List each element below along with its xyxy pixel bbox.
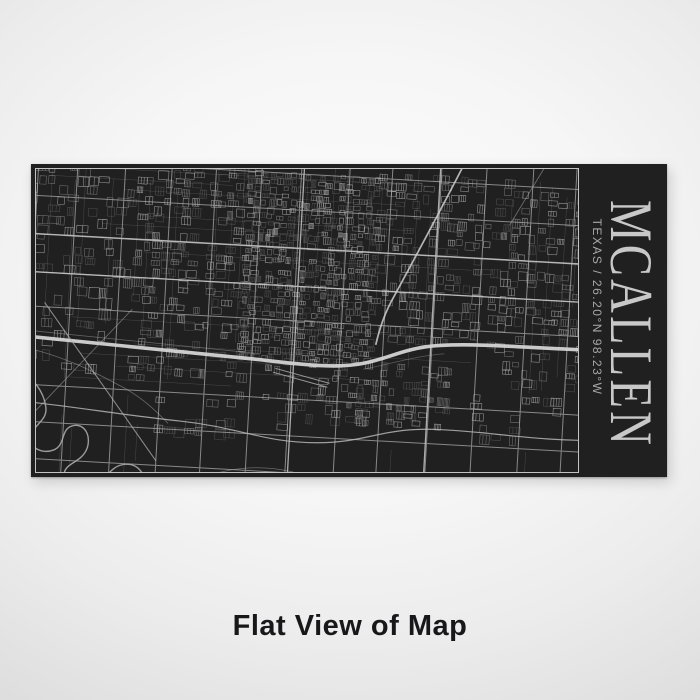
caption-flat-view: Flat View of Map [0,610,700,643]
engraved-map-panel: MCALLEN Texas / 26.20°N 98.23°W [31,164,667,477]
product-view: MCALLEN Texas / 26.20°N 98.23°W Flat Vie… [0,0,700,700]
city-name-label: MCALLEN [601,200,661,448]
map-frame [35,168,579,473]
coordinates-label: Texas / 26.20°N 98.23°W [591,219,603,396]
street-map-graphic [36,169,578,472]
